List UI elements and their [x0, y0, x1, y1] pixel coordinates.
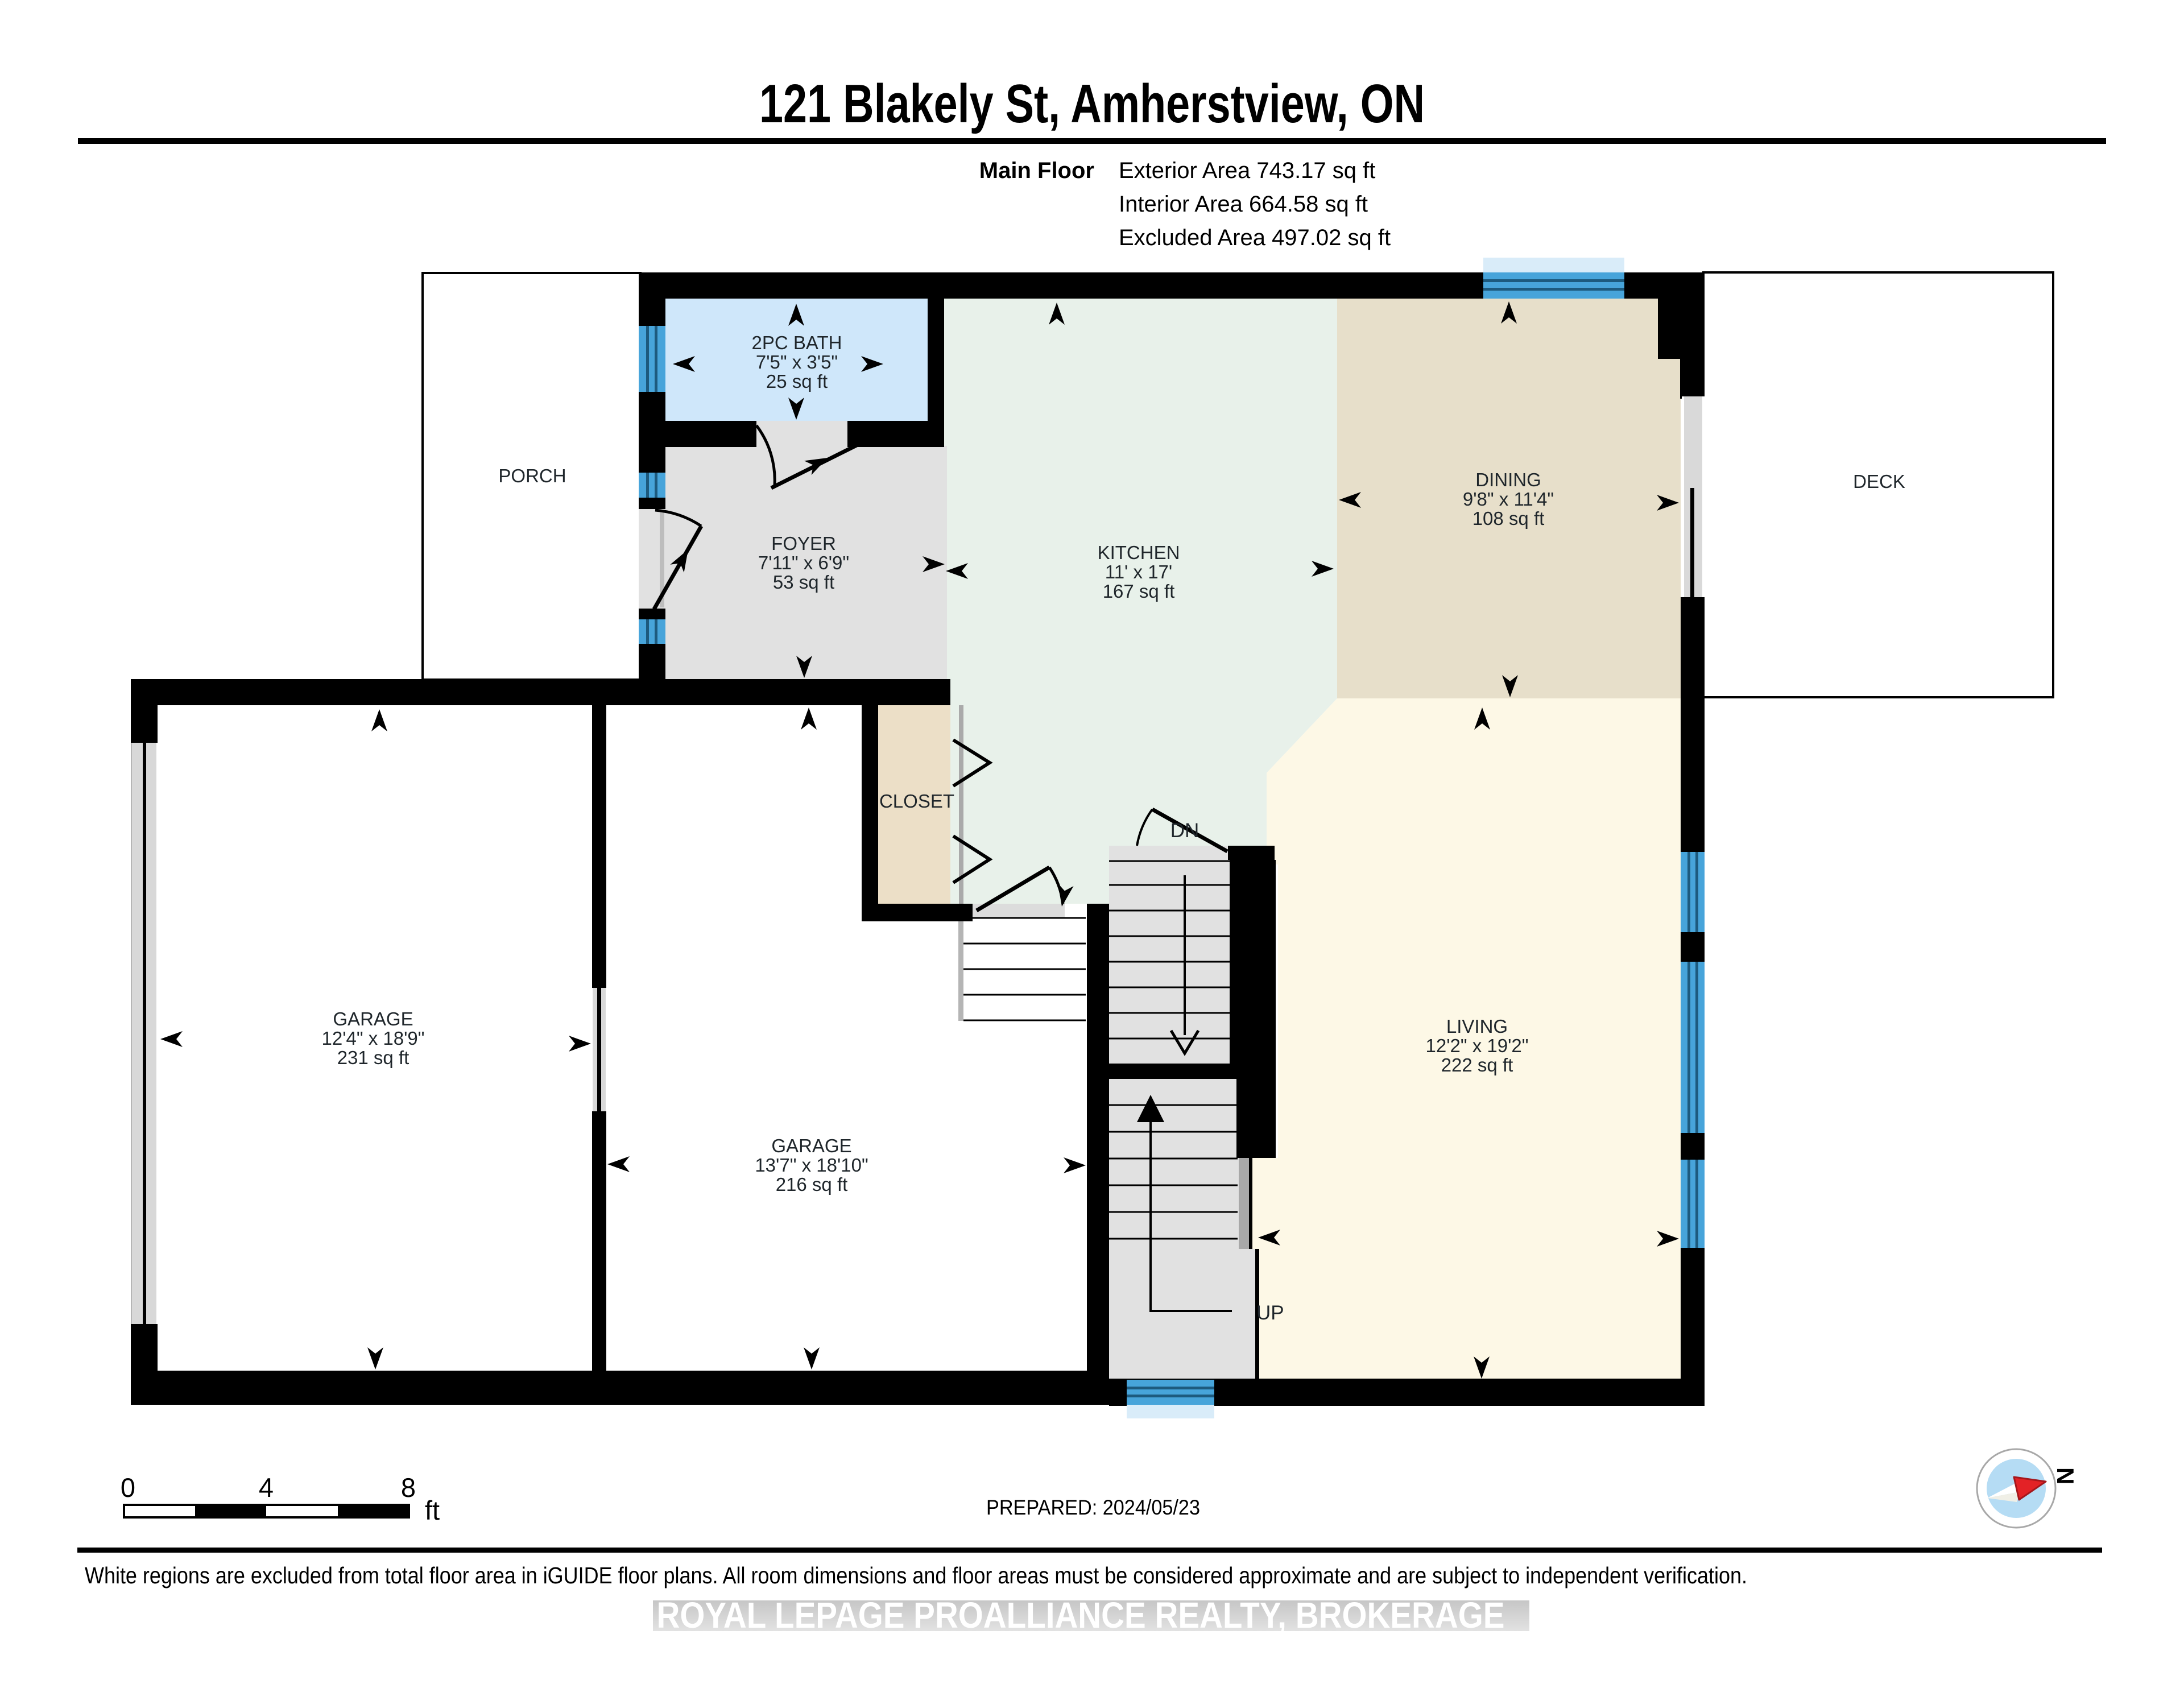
svg-text:25 sq ft: 25 sq ft	[766, 371, 828, 392]
svg-text:4: 4	[259, 1472, 274, 1503]
svg-text:KITCHEN: KITCHEN	[1098, 542, 1180, 563]
svg-text:9'8" x 11'4": 9'8" x 11'4"	[1463, 489, 1554, 510]
svg-text:13'7" x 18'10": 13'7" x 18'10"	[755, 1155, 868, 1176]
svg-text:8: 8	[401, 1472, 416, 1503]
svg-text:PREPARED: 2024/05/23: PREPARED: 2024/05/23	[986, 1496, 1200, 1519]
svg-text:53 sq ft: 53 sq ft	[773, 572, 834, 593]
svg-text:12'2" x 19'2": 12'2" x 19'2"	[1426, 1035, 1529, 1056]
svg-text:222 sq ft: 222 sq ft	[1441, 1054, 1513, 1075]
svg-text:White regions are excluded fro: White regions are excluded from total fl…	[85, 1562, 1747, 1588]
svg-text:UP: UP	[1256, 1302, 1284, 1324]
svg-text:FOYER: FOYER	[771, 533, 836, 554]
svg-text:Excluded Area 497.02 sq ft: Excluded Area 497.02 sq ft	[1119, 225, 1391, 250]
svg-text:LIVING: LIVING	[1446, 1016, 1508, 1037]
svg-text:N: N	[2052, 1467, 2079, 1484]
svg-text:DN: DN	[1170, 820, 1199, 842]
svg-text:DINING: DINING	[1475, 469, 1541, 490]
svg-text:7'5" x 3'5": 7'5" x 3'5"	[756, 351, 838, 373]
svg-text:108 sq ft: 108 sq ft	[1472, 508, 1545, 529]
svg-text:167 sq ft: 167 sq ft	[1103, 581, 1175, 602]
svg-text:216 sq ft: 216 sq ft	[776, 1174, 848, 1195]
svg-text:0: 0	[121, 1472, 135, 1503]
svg-text:2PC BATH: 2PC BATH	[752, 332, 842, 353]
svg-text:7'11" x 6'9": 7'11" x 6'9"	[758, 552, 849, 573]
svg-text:Main Floor: Main Floor	[979, 158, 1094, 183]
svg-text:12'4" x 18'9": 12'4" x 18'9"	[322, 1028, 425, 1049]
svg-text:PORCH: PORCH	[498, 465, 566, 486]
svg-text:DECK: DECK	[1853, 471, 1905, 492]
svg-text:121 Blakely St, Amherstview, O: 121 Blakely St, Amherstview, ON	[759, 73, 1425, 134]
svg-text:11' x 17': 11' x 17'	[1105, 561, 1172, 582]
svg-text:Exterior Area 743.17 sq ft: Exterior Area 743.17 sq ft	[1119, 158, 1375, 183]
svg-text:Interior Area 664.58 sq ft: Interior Area 664.58 sq ft	[1119, 192, 1368, 217]
svg-text:CLOSET: CLOSET	[879, 791, 954, 812]
svg-text:ft: ft	[425, 1495, 440, 1525]
svg-text:231 sq ft: 231 sq ft	[337, 1047, 409, 1068]
svg-text:ROYAL LEPAGE PROALLIANCE REALT: ROYAL LEPAGE PROALLIANCE REALTY, BROKERA…	[657, 1595, 1505, 1636]
svg-text:GARAGE: GARAGE	[771, 1135, 851, 1156]
svg-text:GARAGE: GARAGE	[333, 1008, 413, 1029]
